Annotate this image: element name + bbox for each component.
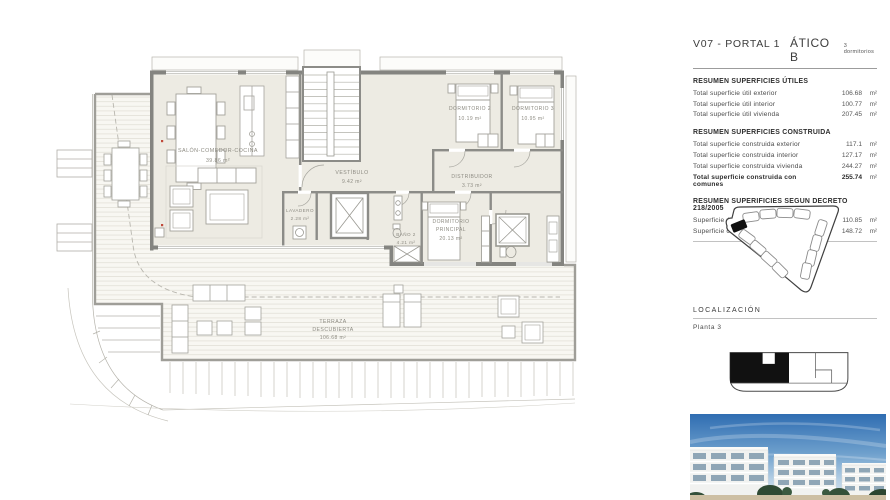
building-render-photo [690, 414, 886, 500]
label-terraza-2: DESCUBIERTA [312, 327, 353, 333]
section-heading-construida: RESUMEN SUPERFICIES CONSTRUIDA [693, 129, 877, 136]
surface-row: Total superficie útil interior 100.77 m² [693, 99, 877, 110]
row-label: Total superficie útil interior [693, 101, 828, 108]
label-principal-area: 20.13 m² [439, 236, 462, 242]
washing-machine [293, 226, 306, 239]
terrace-slat-band [170, 362, 573, 398]
label-bano2-area: 4.21 m² [397, 240, 416, 245]
elevator [331, 193, 368, 238]
ground [690, 495, 886, 500]
row-value: 106.68 [828, 90, 862, 97]
row-value: 127.17 [828, 152, 862, 159]
row-value: 100.77 [828, 101, 862, 108]
localizacion-heading: LOCALIZACIÓN [693, 307, 877, 314]
label-distribuidor-area: 3.73 m² [462, 183, 482, 189]
label-lavadero: LAVADERO [286, 208, 314, 213]
surface-row: Total superficie construida vivienda 244… [693, 161, 877, 172]
surface-row-total: Total superficie construida con comunes … [693, 172, 877, 190]
label-terraza-1: TERRAZA [319, 319, 346, 325]
unit-name: ÁTICO B [790, 36, 839, 64]
portal-title: V07 - PORTAL 1 [693, 38, 790, 50]
row-value: 244.27 [828, 163, 862, 170]
row-label: Total superficie construida vivienda [693, 163, 828, 170]
row-unit: m² [862, 174, 877, 181]
floorplan-sheet: SALÓN-COMEDOR-COCINA 39.86 m² VESTÍBULO … [0, 0, 890, 500]
floor-plan-drawing: SALÓN-COMEDOR-COCINA 39.86 m² VESTÍBULO … [0, 0, 690, 500]
label-salon-area: 39.86 m² [206, 158, 230, 164]
label-dormitorio2-area: 10.19 m² [458, 116, 481, 122]
row-unit: m² [862, 228, 877, 235]
unit-title: V07 - PORTAL 1 ÁTICO B 3 dormitorios [693, 36, 877, 64]
row-label: Total superficie construida con comunes [693, 174, 828, 188]
row-value: 117.1 [828, 141, 862, 148]
label-principal-1: DORMITORIO [433, 219, 470, 225]
label-distribuidor: DISTRIBUIDOR [451, 174, 492, 180]
localizacion-section: LOCALIZACIÓN Planta 3 [693, 307, 877, 331]
section-heading-utiles: RESUMEN SUPERFICIES ÚTILES [693, 78, 877, 85]
row-unit: m² [862, 90, 877, 97]
row-label: Total superficie útil vivienda [693, 111, 828, 118]
row-unit: m² [862, 111, 877, 118]
label-salon: SALÓN-COMEDOR-COCINA [178, 147, 258, 154]
label-vestibulo: VESTÍBULO [335, 169, 368, 176]
label-principal-2: PRINCIPAL [436, 227, 466, 233]
label-bano2: BAÑO 2 [396, 231, 416, 237]
surface-row: Total superficie útil vivienda 207.45 m² [693, 110, 877, 121]
stairs [303, 67, 360, 161]
label-dormitorio3: DORMITORIO 3 [512, 106, 554, 112]
label-dormitorio3-area: 10.95 m² [521, 116, 544, 122]
planter-boxes [57, 150, 92, 251]
label-lavadero-area: 2.28 m² [291, 216, 310, 221]
surface-row: Total superficie construida exterior 117… [693, 139, 877, 150]
row-value: 207.45 [828, 111, 862, 118]
title-divider [693, 68, 877, 69]
site-plan-key [718, 203, 858, 305]
row-value: 255.74 [828, 174, 862, 181]
label-dormitorio2: DORMITORIO 2 [449, 106, 491, 112]
label-terraza-area: 106.68 m² [320, 335, 347, 341]
row-unit: m² [862, 163, 877, 170]
surface-row: Total superficie construida interior 127… [693, 150, 877, 161]
floor-footprint-key [722, 349, 856, 403]
row-unit: m² [862, 141, 877, 148]
localizacion-divider [693, 318, 877, 319]
footprint-drawing [722, 349, 856, 403]
unit-highlight [730, 353, 789, 383]
row-label: Total superficie construida exterior [693, 141, 828, 148]
surface-row: Total superficie útil exterior 106.68 m² [693, 88, 877, 99]
row-label: Total superficie útil exterior [693, 90, 828, 97]
row-unit: m² [862, 217, 877, 224]
floor-label: Planta 3 [693, 324, 877, 331]
bedrooms-count: 3 dormitorios [844, 43, 877, 55]
row-unit: m² [862, 152, 877, 159]
row-label: Total superficie construida interior [693, 152, 828, 159]
render-image [690, 414, 886, 500]
site-plan-drawing [718, 203, 858, 305]
label-vestibulo-area: 9.42 m² [342, 179, 362, 185]
row-unit: m² [862, 101, 877, 108]
